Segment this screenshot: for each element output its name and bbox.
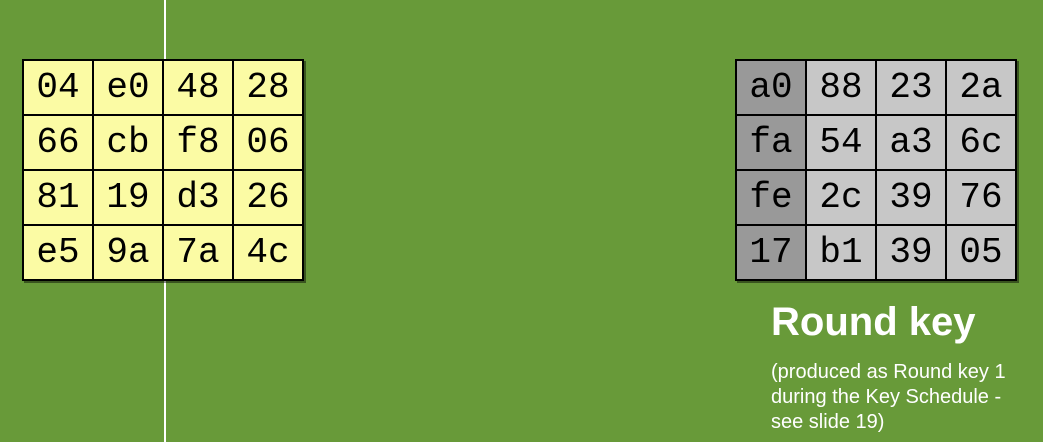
state-cell: e0 — [93, 60, 163, 115]
round-key-cell: 05 — [946, 225, 1016, 280]
state-cell: f8 — [163, 115, 233, 170]
round-key-cell: 6c — [946, 115, 1016, 170]
round-key-row: fe 2c 39 76 — [736, 170, 1016, 225]
round-key-cell: fe — [736, 170, 806, 225]
round-key-cell: a3 — [876, 115, 946, 170]
round-key-row: 17 b1 39 05 — [736, 225, 1016, 280]
round-key-cell: 23 — [876, 60, 946, 115]
round-key-cell: fa — [736, 115, 806, 170]
round-key-title: Round key — [771, 300, 975, 345]
state-matrix-row: 81 19 d3 26 — [23, 170, 303, 225]
state-cell: 04 — [23, 60, 93, 115]
state-cell: 06 — [233, 115, 303, 170]
round-key-caption: (produced as Round key 1 during the Key … — [771, 360, 1031, 435]
round-key-cell: 2c — [806, 170, 876, 225]
round-key-matrix: a0 88 23 2a fa 54 a3 6c fe 2c 39 76 17 b… — [735, 59, 1017, 281]
state-matrix: 04 e0 48 28 66 cb f8 06 81 19 d3 26 e5 9… — [22, 59, 304, 281]
round-key-cell: 39 — [876, 170, 946, 225]
round-key-cell: b1 — [806, 225, 876, 280]
state-cell: e5 — [23, 225, 93, 280]
state-cell: d3 — [163, 170, 233, 225]
state-cell: cb — [93, 115, 163, 170]
state-matrix-row: e5 9a 7a 4c — [23, 225, 303, 280]
state-cell: 4c — [233, 225, 303, 280]
state-cell: 19 — [93, 170, 163, 225]
round-key-cell: 54 — [806, 115, 876, 170]
round-key-cell: 39 — [876, 225, 946, 280]
round-key-cell: 17 — [736, 225, 806, 280]
state-cell: 9a — [93, 225, 163, 280]
round-key-cell: a0 — [736, 60, 806, 115]
round-key-row: fa 54 a3 6c — [736, 115, 1016, 170]
slide-canvas: 04 e0 48 28 66 cb f8 06 81 19 d3 26 e5 9… — [0, 0, 1043, 442]
state-cell: 7a — [163, 225, 233, 280]
state-matrix-row: 04 e0 48 28 — [23, 60, 303, 115]
round-key-row: a0 88 23 2a — [736, 60, 1016, 115]
round-key-cell: 88 — [806, 60, 876, 115]
state-cell: 26 — [233, 170, 303, 225]
state-cell: 48 — [163, 60, 233, 115]
state-cell: 81 — [23, 170, 93, 225]
state-cell: 28 — [233, 60, 303, 115]
round-key-cell: 2a — [946, 60, 1016, 115]
round-key-cell: 76 — [946, 170, 1016, 225]
state-cell: 66 — [23, 115, 93, 170]
state-matrix-row: 66 cb f8 06 — [23, 115, 303, 170]
